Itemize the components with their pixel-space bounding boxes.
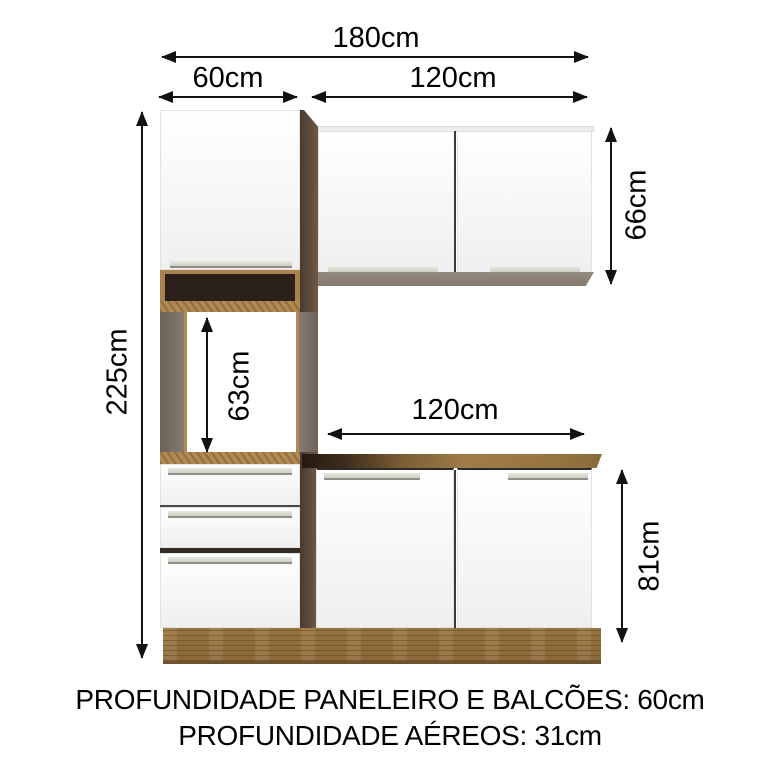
dim-upper-height-arrow (610, 128, 612, 284)
dim-pantry-width-label: 60cm (193, 64, 264, 93)
pantry-drawer-2-handle (168, 511, 292, 518)
oven-space-right-column (296, 312, 318, 452)
upper-cabinet-bottom-panel (318, 272, 594, 286)
pantry-upper-door-handle (170, 261, 292, 268)
dim-pantry-width-arrow (159, 96, 297, 98)
dim-total-width-arrow (162, 56, 588, 58)
dim-upper-width-label: 120cm (409, 64, 496, 93)
dim-oven-space-height-arrow (206, 318, 208, 452)
upper-left-door (318, 131, 455, 273)
upper-left-door-handle (328, 267, 438, 274)
dim-total-height-arrow (141, 112, 143, 658)
dim-base-height-arrow (621, 470, 623, 642)
footer-depth-notes: PROFUNDIDADE PANELEIRO E BALCÕES: 60cm P… (0, 682, 780, 754)
dim-base-width-label: 120cm (411, 396, 498, 425)
niche-interior (165, 274, 295, 301)
cabinet-dimension-diagram: 180cm 60cm 120cm 225cm 66cm 63cm 120cm 8… (0, 0, 780, 780)
plinth (163, 628, 601, 664)
base-right-door-handle (508, 473, 588, 480)
dim-total-height-label: 225cm (104, 328, 133, 415)
oven-space-left-column (160, 312, 187, 452)
base-right-door (457, 468, 592, 628)
upper-door-split (454, 131, 456, 273)
footer-line-2: PROFUNDIDADE AÉREOS: 31cm (0, 718, 780, 754)
footer-line-1: PROFUNDIDADE PANELEIRO E BALCÕES: 60cm (0, 682, 780, 718)
base-door-split (454, 470, 456, 628)
dim-total-width-label: 180cm (332, 24, 419, 53)
niche-shelf (160, 301, 300, 312)
oven-space-right-edge (296, 312, 299, 452)
pantry-drawer-3 (160, 553, 300, 628)
dim-base-height-label: 81cm (636, 521, 665, 592)
base-left-door-handle (324, 473, 420, 480)
pantry-upper-door (160, 110, 300, 270)
upper-right-door (457, 131, 592, 273)
oven-space-bottom-shelf (160, 452, 300, 464)
pantry-drawer-3-handle (168, 557, 292, 564)
dim-base-width-arrow (328, 433, 584, 435)
base-left-door (316, 468, 454, 628)
dim-upper-width-arrow (312, 96, 587, 98)
oven-space-left-edge (184, 312, 187, 452)
upper-right-door-handle (490, 267, 580, 274)
dim-oven-space-height-label: 63cm (226, 351, 255, 422)
countertop (302, 454, 602, 468)
dim-upper-height-label: 66cm (623, 170, 652, 241)
pantry-drawer-1-handle (168, 468, 292, 475)
